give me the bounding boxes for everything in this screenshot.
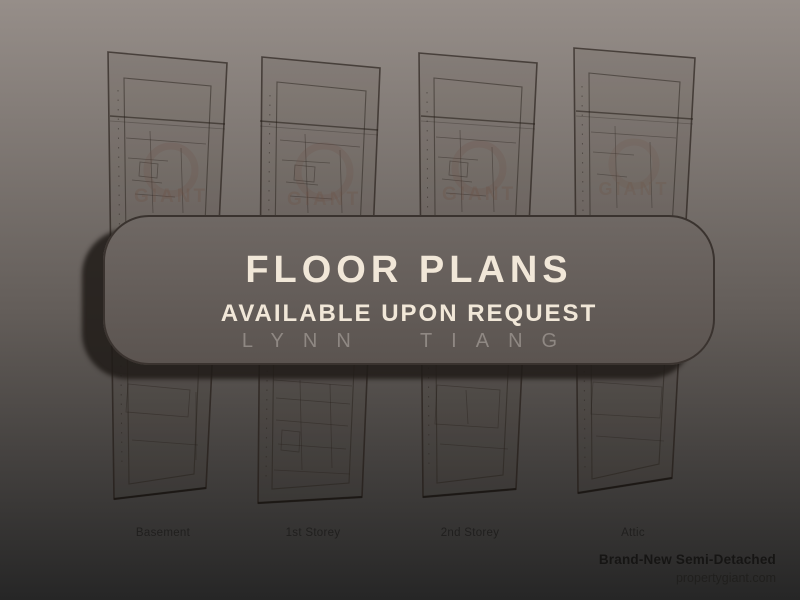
watermark-text: GIANT bbox=[599, 179, 670, 199]
website-text: propertygiant.com bbox=[599, 570, 776, 587]
floor-plan-label-basement: Basement bbox=[136, 527, 190, 539]
property-type-text: Brand-New Semi-Detached bbox=[599, 551, 776, 569]
floor-plan-label-1st-storey: 1st Storey bbox=[286, 527, 341, 539]
card-title: FLOOR PLANS bbox=[245, 251, 572, 289]
agent-name: LYNN TIANG bbox=[242, 331, 576, 351]
slide-background: GIANT bbox=[0, 0, 800, 600]
floor-plan-label-attic: Attic bbox=[621, 527, 645, 539]
card-subtitle: AVAILABLE UPON REQUEST bbox=[221, 302, 597, 326]
watermark-text: GIANT bbox=[134, 186, 208, 207]
footer-branding: Brand-New Semi-Detached propertygiant.co… bbox=[599, 551, 776, 587]
floor-plan-label-2nd-storey: 2nd Storey bbox=[441, 527, 500, 539]
floor-plans-card: FLOOR PLANS AVAILABLE UPON REQUEST LYNN … bbox=[103, 215, 715, 365]
watermark-text: GIANT bbox=[442, 184, 516, 205]
watermark-text: GIANT bbox=[287, 189, 361, 210]
